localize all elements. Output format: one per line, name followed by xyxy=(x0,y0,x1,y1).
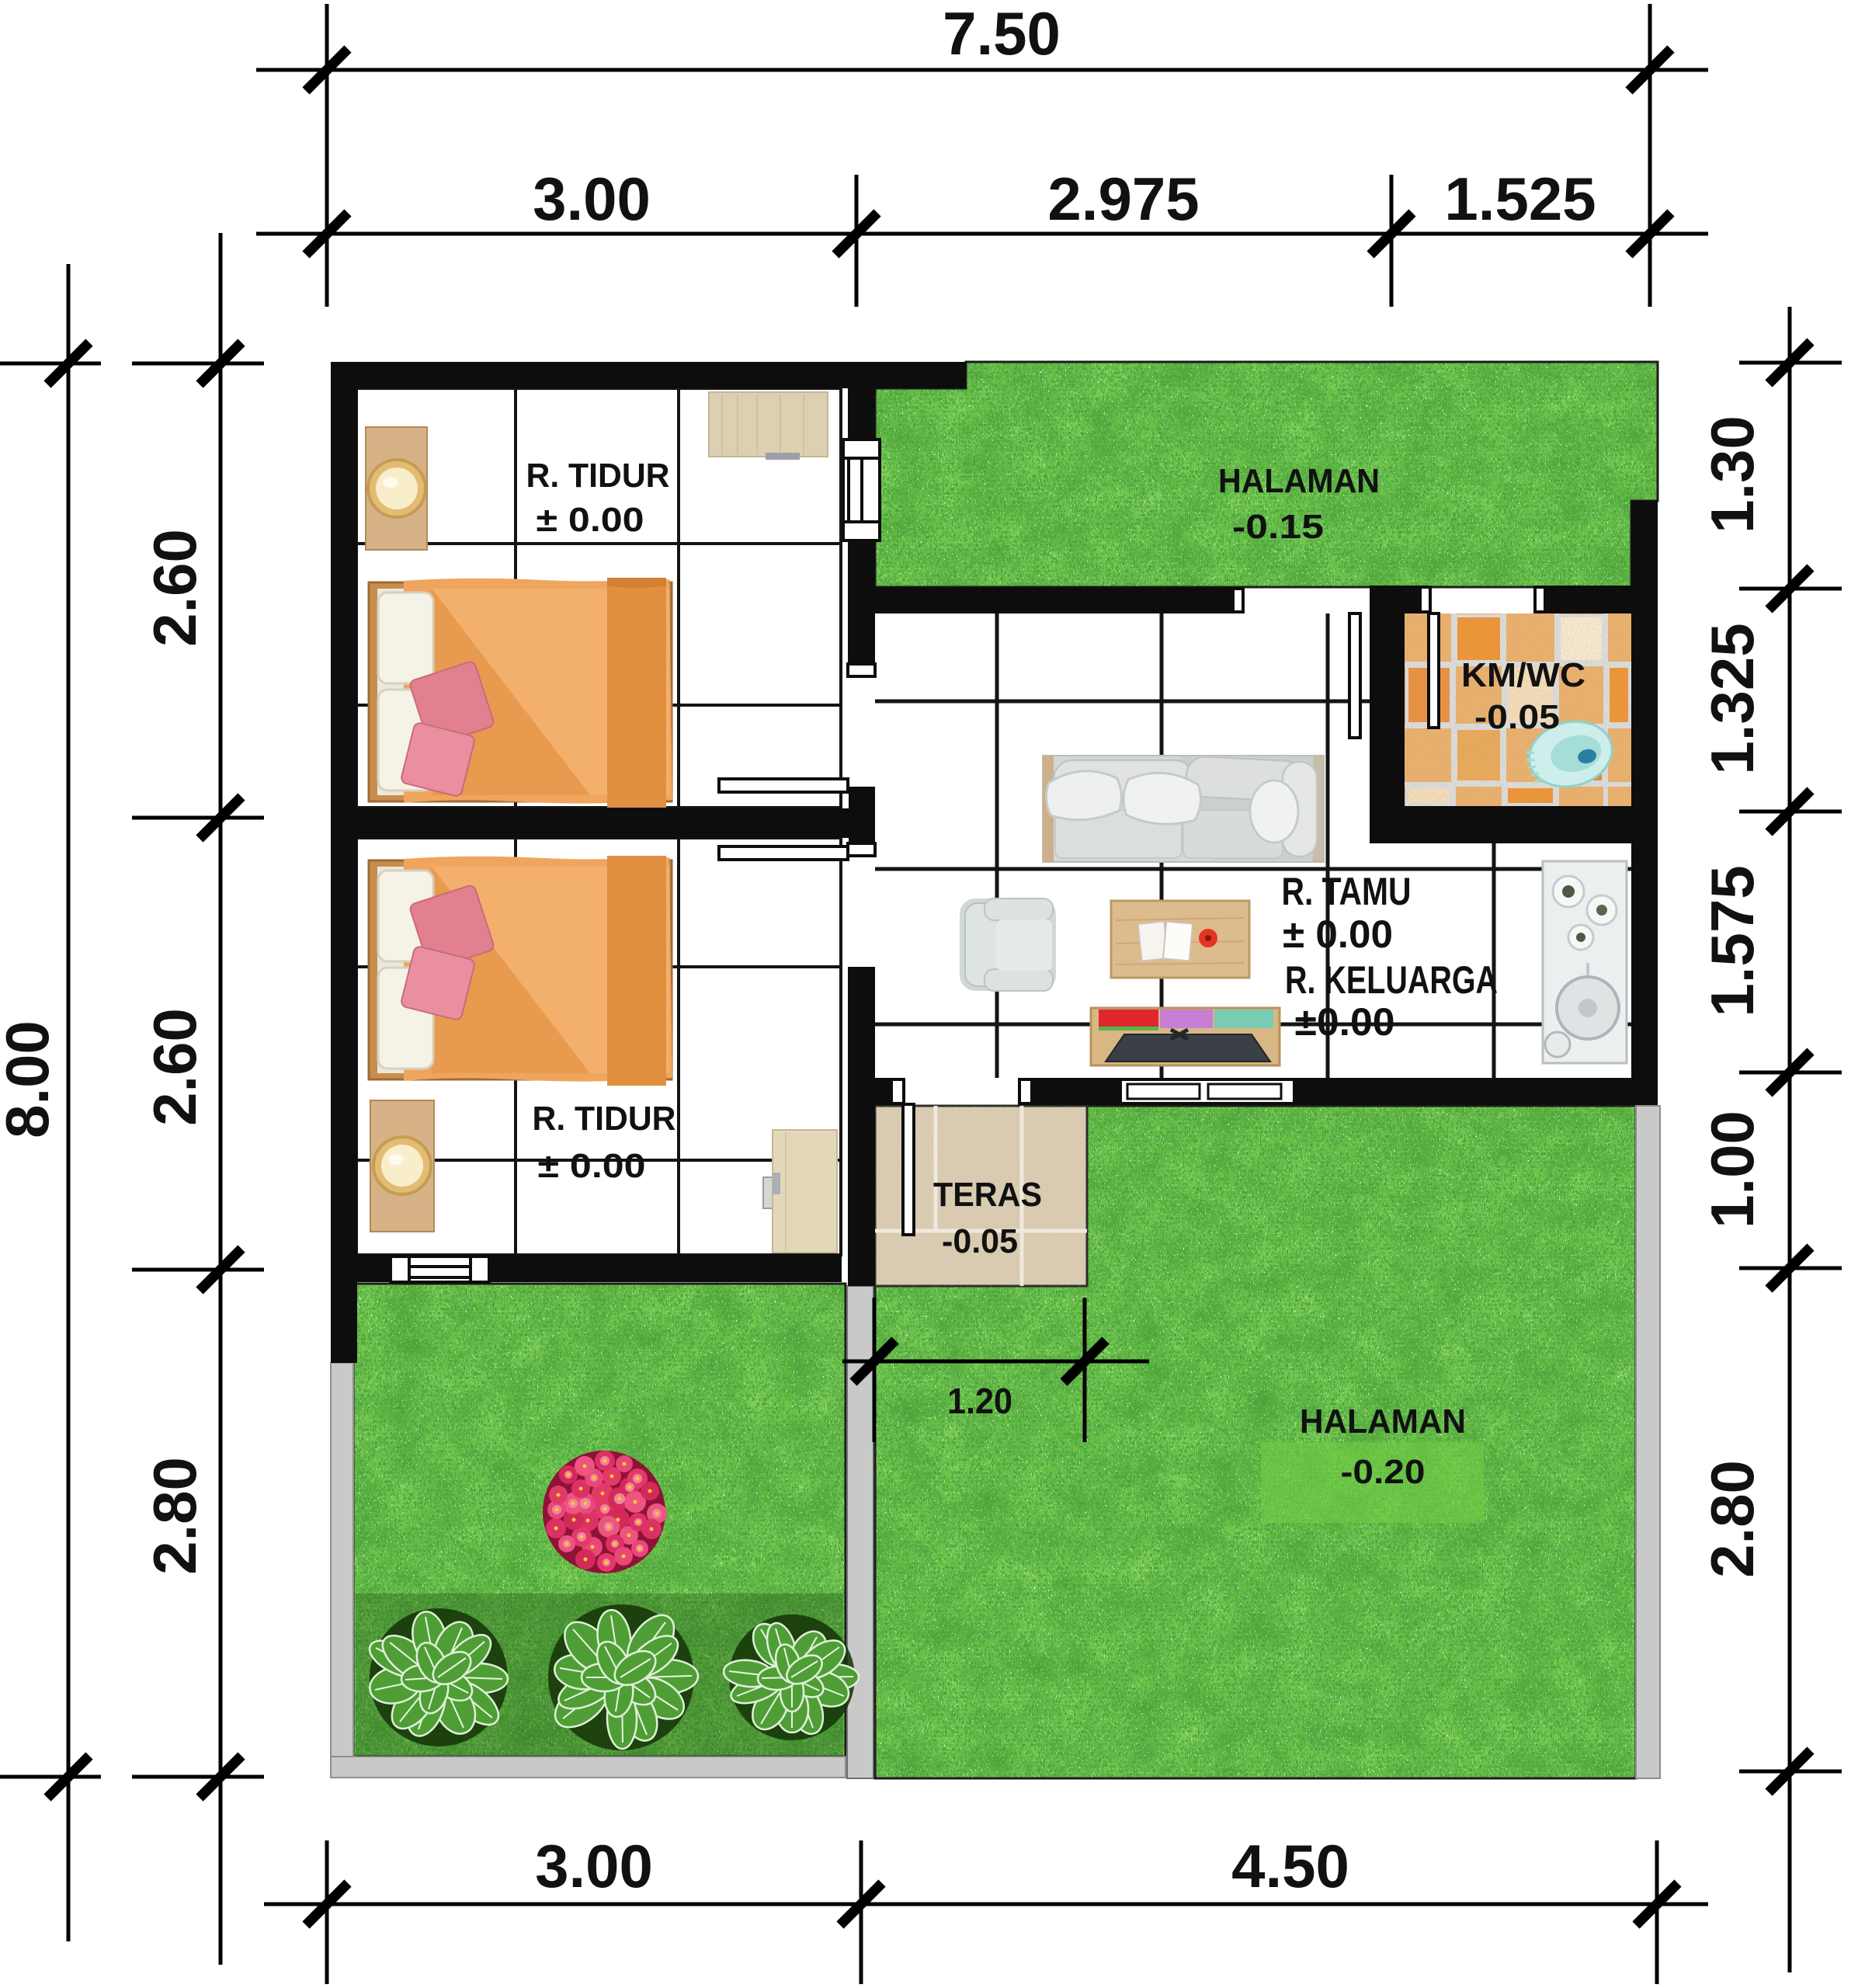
svg-text:± 0.00: ± 0.00 xyxy=(538,1147,646,1185)
svg-text:R. TIDUR: R. TIDUR xyxy=(533,1100,676,1138)
svg-text:-0.05: -0.05 xyxy=(1474,698,1560,736)
svg-text:R. KELUARGA: R. KELUARGA xyxy=(1285,958,1498,1002)
svg-text:2.80: 2.80 xyxy=(141,1457,209,1575)
svg-text:4.50: 4.50 xyxy=(1231,1832,1349,1900)
svg-text:3.00: 3.00 xyxy=(533,165,651,233)
svg-text:± 0.00: ± 0.00 xyxy=(537,501,644,539)
svg-text:2.60: 2.60 xyxy=(141,529,209,647)
svg-text:KM/WC: KM/WC xyxy=(1461,656,1585,694)
svg-text:R. TIDUR: R. TIDUR xyxy=(526,457,670,495)
svg-text:1.525: 1.525 xyxy=(1444,165,1596,233)
svg-text:2.80: 2.80 xyxy=(1698,1460,1766,1578)
svg-text:R. TAMU: R. TAMU xyxy=(1282,870,1412,913)
svg-text:-0.15: -0.15 xyxy=(1232,508,1324,546)
svg-text:±0.00: ±0.00 xyxy=(1295,1000,1395,1044)
svg-text:1.30: 1.30 xyxy=(1698,415,1766,533)
svg-text:HALAMAN: HALAMAN xyxy=(1218,462,1380,500)
svg-text:1.00: 1.00 xyxy=(1698,1110,1766,1229)
svg-text:1.325: 1.325 xyxy=(1698,623,1766,774)
svg-text:2.60: 2.60 xyxy=(141,1008,209,1126)
svg-text:HALAMAN: HALAMAN xyxy=(1300,1402,1466,1441)
svg-text:7.50: 7.50 xyxy=(943,0,1061,68)
svg-text:1.20: 1.20 xyxy=(947,1381,1012,1421)
svg-text:1.575: 1.575 xyxy=(1698,865,1766,1017)
svg-text:2.975: 2.975 xyxy=(1047,165,1199,233)
svg-text:± 0.00: ± 0.00 xyxy=(1283,912,1393,956)
svg-text:8.00: 8.00 xyxy=(0,1020,61,1138)
svg-text:3.00: 3.00 xyxy=(535,1832,653,1900)
svg-text:TERAS: TERAS xyxy=(933,1176,1042,1214)
svg-text:-0.05: -0.05 xyxy=(942,1222,1018,1260)
svg-text:-0.20: -0.20 xyxy=(1341,1453,1426,1491)
